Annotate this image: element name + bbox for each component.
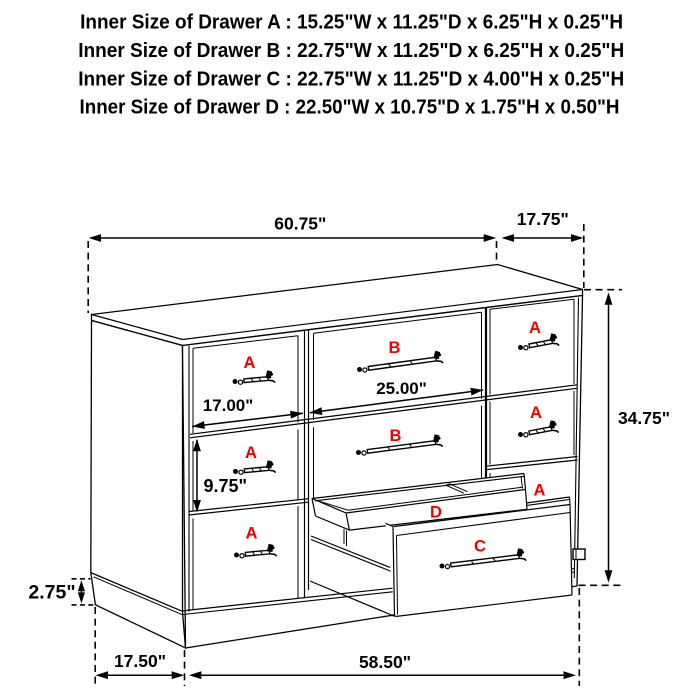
svg-text:A: A — [246, 525, 258, 543]
svg-text:17.00": 17.00" — [203, 396, 254, 415]
svg-text:B: B — [389, 339, 401, 357]
svg-text:A: A — [529, 319, 541, 337]
svg-text:25.00": 25.00" — [376, 379, 427, 398]
svg-text:B: B — [390, 427, 402, 445]
svg-text:2.75": 2.75" — [28, 582, 75, 604]
svg-text:60.75": 60.75" — [274, 214, 326, 234]
svg-text:A: A — [245, 444, 257, 462]
svg-text:17.50": 17.50" — [114, 651, 166, 671]
svg-text:Inner Size of Drawer B : 22.75: Inner Size of Drawer B : 22.75"W x 11.25… — [78, 40, 624, 62]
svg-text:58.50": 58.50" — [359, 652, 411, 672]
svg-text:D: D — [430, 504, 442, 522]
svg-text:Inner Size of Drawer C : 22.75: Inner Size of Drawer C : 22.75"W x 11.25… — [78, 68, 624, 90]
svg-text:17.75": 17.75" — [517, 209, 569, 229]
svg-text:Inner Size of Drawer D : 22.5: Inner Size of Drawer D : 22.50"W x 10.75… — [80, 97, 620, 119]
svg-text:34.75": 34.75" — [618, 408, 670, 428]
svg-text:Inner Size of Drawer A : 15.25: Inner Size of Drawer A : 15.25"W x 11.25… — [80, 12, 623, 34]
svg-text:9.75": 9.75" — [204, 476, 248, 496]
svg-text:A: A — [530, 404, 542, 422]
svg-text:A: A — [244, 354, 256, 372]
svg-text:C: C — [474, 538, 486, 556]
svg-text:A: A — [534, 482, 546, 500]
